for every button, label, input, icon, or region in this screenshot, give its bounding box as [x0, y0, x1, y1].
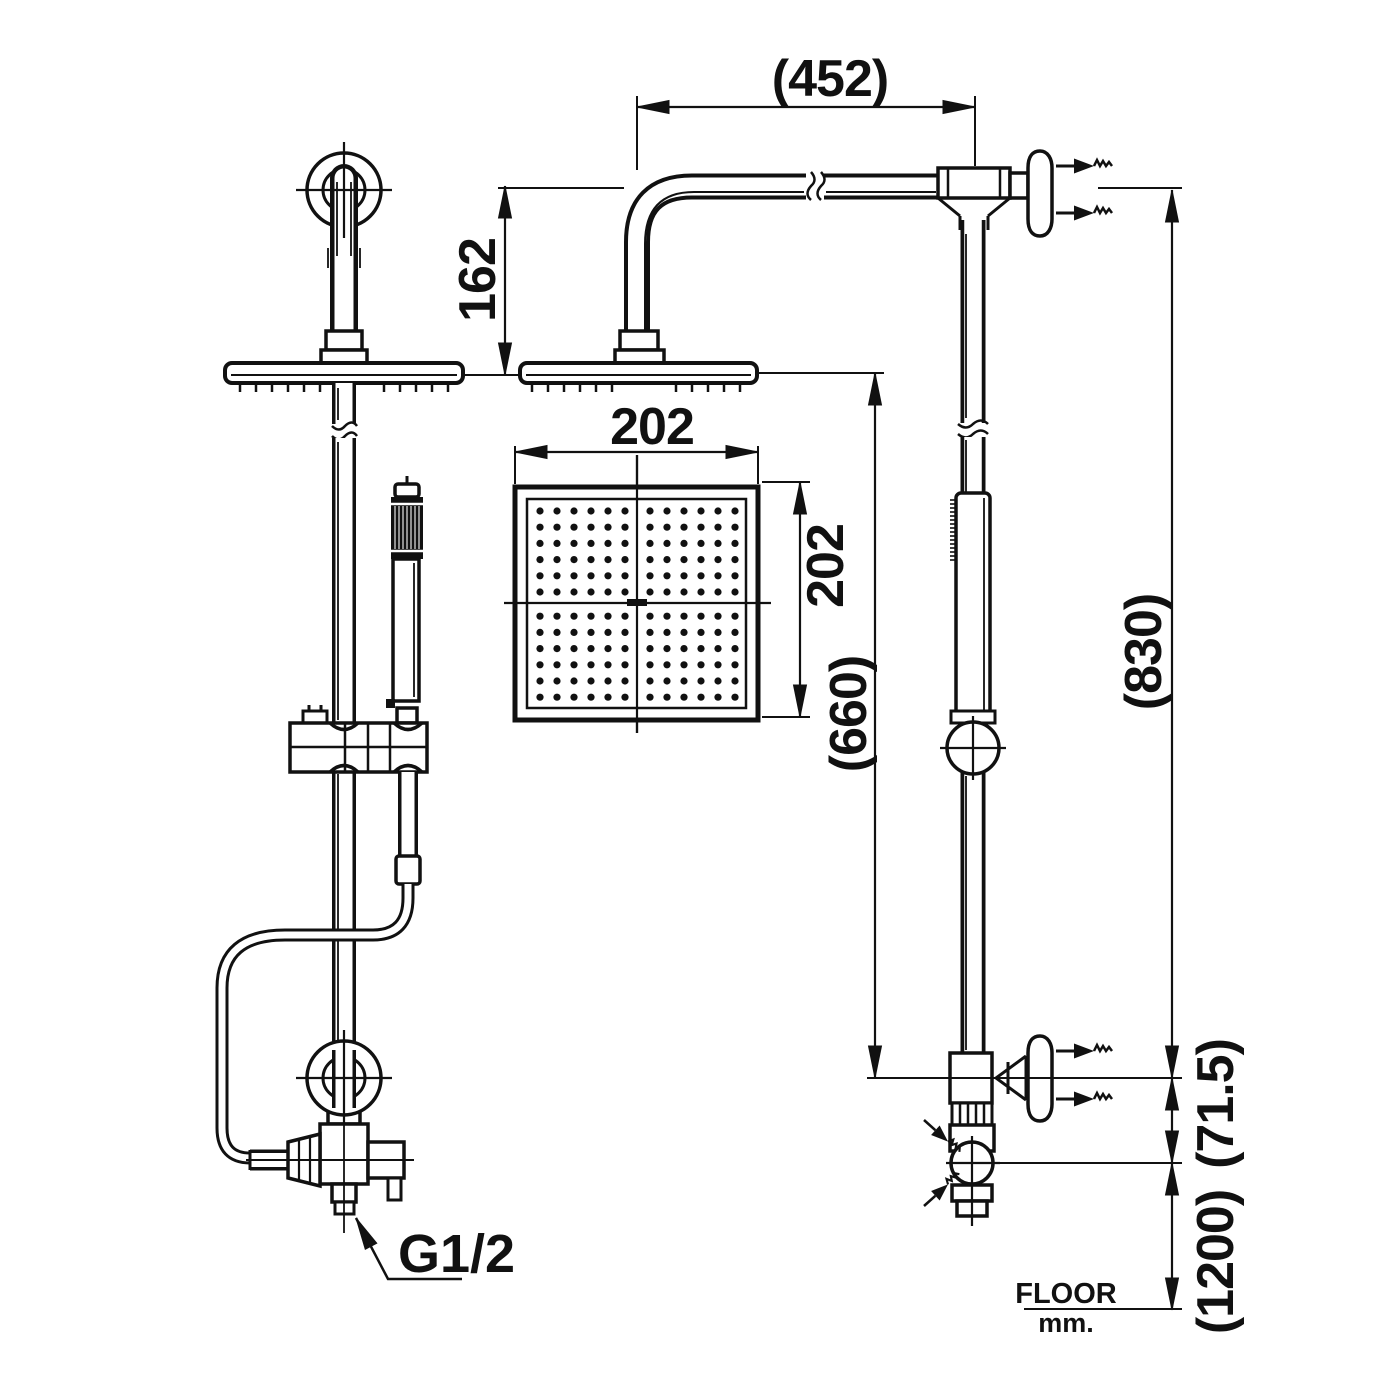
arm-break-symbol	[808, 170, 825, 203]
dim-text-202-depth: 202	[797, 524, 855, 608]
dim-text-71-5: (71.5)	[1187, 1039, 1245, 1169]
units-label: mm.	[1038, 1308, 1094, 1338]
holder-hook	[386, 699, 395, 708]
shower-system-drawing: (452) 162 202 202	[0, 0, 1400, 1400]
head-face-view	[504, 455, 771, 733]
dim-text-660: (660)	[820, 656, 878, 772]
dim-text-830: (830)	[1115, 594, 1173, 710]
dim-text-162: 162	[449, 238, 507, 322]
thread-label: G1/2	[398, 1224, 515, 1284]
arm-nut	[620, 331, 658, 350]
slider-knob	[303, 711, 327, 723]
dim-text-452: (452)	[772, 50, 888, 108]
technical-drawing-page: (452) 162 202 202	[0, 0, 1400, 1400]
grip-stripes	[395, 506, 419, 549]
handshower-cap	[395, 484, 419, 497]
dim-text-1200: (1200)	[1187, 1190, 1245, 1334]
front-handshower	[386, 476, 423, 723]
front-head-nut	[326, 331, 362, 350]
top-wall-flange	[1028, 151, 1052, 236]
floor-label: FLOOR	[1015, 1278, 1117, 1310]
handshower-body	[393, 559, 419, 701]
dim-text-202-width: 202	[610, 398, 694, 456]
center-mark	[627, 599, 647, 606]
